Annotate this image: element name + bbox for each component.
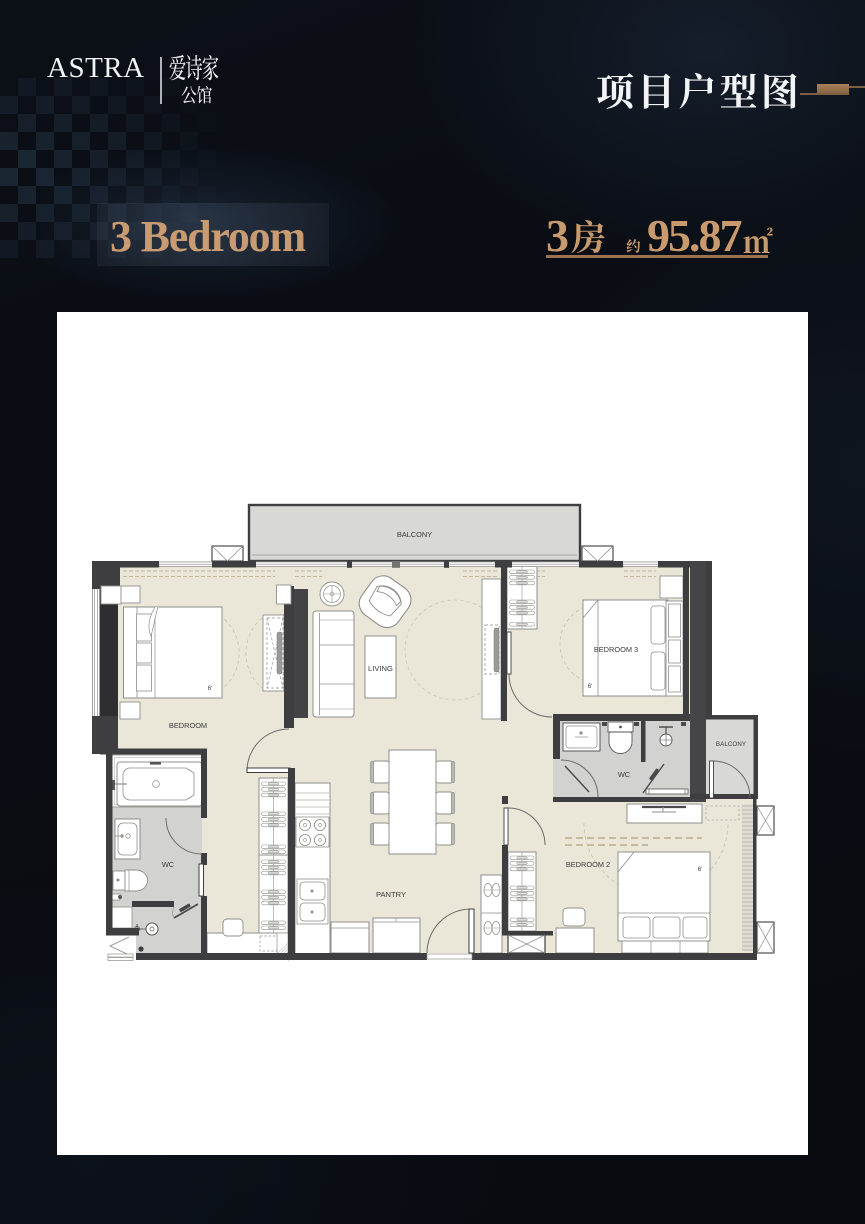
svg-text:LIVING: LIVING (368, 664, 393, 673)
svg-text:BALCONY: BALCONY (397, 530, 432, 539)
svg-text:WC: WC (162, 860, 175, 869)
svg-text:6ʹ: 6ʹ (588, 683, 592, 690)
svg-text:BALCONY: BALCONY (716, 741, 746, 748)
svg-text:PANTRY: PANTRY (376, 890, 406, 899)
svg-text:BEDROOM 3: BEDROOM 3 (594, 645, 638, 654)
svg-text:BEDROOM: BEDROOM (169, 721, 207, 730)
svg-text:WC: WC (618, 770, 631, 779)
svg-text:6ʹ: 6ʹ (208, 685, 212, 692)
svg-text:6ʹ: 6ʹ (698, 866, 702, 873)
svg-text:BEDROOM 2: BEDROOM 2 (566, 860, 610, 869)
